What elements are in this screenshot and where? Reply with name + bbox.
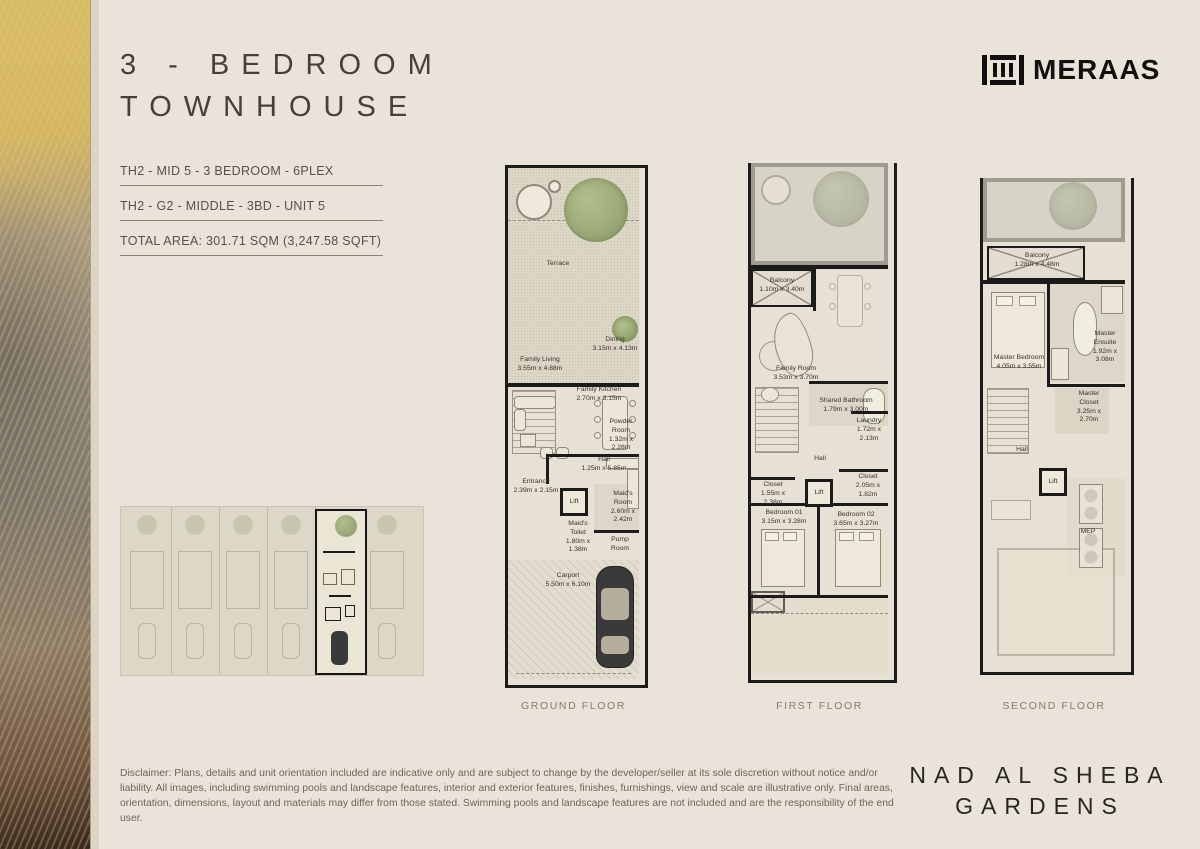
car-outline [234, 623, 252, 659]
room-label-hall: Hall 1.25m x 5.85m [580, 456, 628, 474]
pillow [996, 296, 1013, 306]
vanity [1051, 348, 1069, 380]
chair [629, 400, 636, 407]
car-outline [378, 623, 396, 659]
room-label-family-kitchen: Family Kitchen 2.70m x 3.15m [570, 386, 628, 404]
chair [594, 416, 601, 423]
room-label-shared-bathroom: Shared Bathroom 1.79m x 3.00m [809, 397, 883, 415]
meraas-logo: MERAAS [982, 54, 1160, 86]
pillow [859, 532, 874, 541]
meraas-logo-icon [982, 55, 1024, 85]
pillow [765, 532, 779, 541]
page-title: 3 - BEDROOM TOWNHOUSE [120, 44, 444, 128]
unit-outline [274, 551, 308, 609]
car-outline [138, 623, 156, 659]
room-label-mep: MEP [1073, 528, 1103, 537]
room-label-family-room: Family Room 3.53m x 3.70m [765, 365, 827, 383]
wall [1047, 384, 1125, 387]
strip-divider [90, 0, 99, 849]
planter-icon [548, 180, 561, 193]
room-label-terrace: Terrace [528, 260, 588, 269]
tree-icon [137, 515, 157, 535]
car-outline [186, 623, 204, 659]
wall [751, 477, 795, 480]
wall [813, 269, 816, 311]
tree-icon [377, 515, 397, 535]
unit-outline [178, 551, 212, 609]
garage-opening [516, 673, 631, 674]
planter-icon [761, 175, 791, 205]
floor-label-first: FIRST FLOOR [748, 700, 891, 712]
pillow [783, 532, 797, 541]
room-label-lift: Lift [805, 489, 833, 498]
total-area-line: TOTAL AREA: 301.71 SQM (3,247.58 SQFT) [120, 234, 383, 256]
chair [864, 303, 871, 310]
unit-info-block: TH2 - MID 5 - 3 BEDROOM - 6PLEX TH2 - G2… [120, 164, 383, 269]
car-icon [331, 631, 348, 665]
wall [594, 530, 639, 533]
room-label-powder-room: Powder Room 1.32m x 2.28m [604, 418, 638, 453]
room-label-hall: Hall [805, 455, 835, 464]
room-label-master-closet: Master Closet 3.25m x 2.70m [1071, 390, 1107, 425]
seat [991, 500, 1031, 520]
mini-room [345, 605, 355, 617]
tree-icon [185, 515, 205, 535]
pillow [839, 532, 854, 541]
tree-icon [281, 515, 301, 535]
room-label-closet-1: Closet 1.55m x 2.38m [753, 481, 793, 507]
ac-unit [1079, 484, 1103, 524]
site-key-plan [120, 506, 424, 676]
unit-code-line: TH2 - MID 5 - 3 BEDROOM - 6PLEX [120, 164, 383, 186]
room-label-laundry: Laundry 1.72m x 2.13m [853, 417, 885, 443]
site-unit [363, 507, 411, 675]
tree-icon [233, 515, 253, 535]
floor-label-second: SECOND FLOOR [980, 700, 1128, 712]
coffee-table [520, 434, 536, 447]
mini-wall [329, 595, 351, 597]
room-label-hall: Hall [1007, 446, 1037, 455]
second-floor-plan: Balcony 1.28m x 4.48m Lift Master Bedroo… [980, 178, 1134, 675]
room-label-entrance: Entrance 2.39m x 2.15m [512, 478, 560, 496]
room-label-balcony: Balcony 1.28m x 4.48m [991, 252, 1083, 270]
site-unit [123, 507, 172, 675]
wall [751, 595, 888, 598]
sofa [514, 409, 526, 431]
wall [839, 469, 888, 472]
brand-name: MERAAS [1033, 54, 1160, 86]
room-label-maids-room: Maid's Room 2.60m x 2.42m [608, 490, 638, 525]
site-unit [219, 507, 268, 675]
room-label-maids-toilet: Maid's Toilet 1.80m x 1.38m [560, 520, 596, 555]
room-label-balcony: Balcony 1.10m x 3.40m [753, 277, 811, 295]
dining-table-ghost [837, 275, 863, 327]
beanbag [761, 387, 779, 402]
mini-room [341, 569, 355, 585]
wall [817, 506, 820, 596]
unit-detail-line: TH2 - G2 - MIDDLE - 3BD - UNIT 5 [120, 199, 383, 221]
brochure-page: 3 - BEDROOM TOWNHOUSE TH2 - MID 5 - 3 BE… [0, 0, 1200, 849]
car-rear-window [601, 636, 629, 654]
staircase [987, 388, 1029, 454]
decorative-leaf-image [0, 0, 90, 849]
mini-wall [323, 551, 355, 553]
room-label-bedroom-01: Bedroom 01 3.15m x 3.28m [755, 509, 813, 527]
room-label-bedroom-02: Bedroom 02 3.65m x 3.27m [827, 511, 885, 529]
unit-outline [226, 551, 260, 609]
tree-icon [813, 171, 869, 227]
wall [751, 265, 888, 269]
site-unit [267, 507, 316, 675]
project-name: NAD AL SHEBA GARDENS [905, 760, 1175, 822]
room-label-carport: Carport 5.50m x 6.10m [538, 572, 598, 590]
chair [829, 303, 836, 310]
sofa [514, 396, 556, 409]
room-label-family-living: Family Living 3.55m x 4.88m [514, 356, 566, 374]
tree-icon [564, 178, 628, 242]
wall [983, 280, 1125, 284]
room-label-master-ensuite: Master Ensuite 1.92m x 3.08m [1087, 330, 1123, 365]
room-label-lift: Lift [560, 498, 588, 507]
mini-room [325, 607, 341, 621]
room-label-dining: Dining 3.15m x 4.13m [590, 336, 640, 354]
room-label-lift: Lift [1039, 478, 1067, 487]
car-outline [282, 623, 300, 659]
site-unit [171, 507, 220, 675]
tree-icon [335, 515, 357, 537]
room-label-closet-2: Closet 2.05m x 1.82m [851, 473, 885, 499]
unit-outline [370, 551, 404, 609]
room-label-master-bedroom: Master Bedroom 4.05m x 3.55m [989, 354, 1049, 372]
first-floor-plan: Balcony 1.10m x 3.40m Lift Family Room 3 [748, 163, 897, 683]
chair [864, 283, 871, 290]
car-windshield [601, 588, 629, 620]
mini-room [323, 573, 337, 585]
tree-icon [1049, 182, 1097, 230]
unit-outline [130, 551, 164, 609]
disclaimer-text: Disclaimer: Plans, details and unit orie… [120, 766, 902, 826]
shower [1101, 286, 1123, 314]
ground-floor-plan: Terrace Lift Dining 3.15m x 4.13m Family… [505, 165, 648, 688]
site-unit-highlighted [315, 509, 367, 675]
roof-dash-line [751, 613, 888, 614]
armchair [556, 447, 569, 459]
chair [829, 283, 836, 290]
planter-icon [516, 184, 552, 220]
chair [594, 432, 601, 439]
floor-label-ground: GROUND FLOOR [505, 700, 642, 712]
pillow [1019, 296, 1036, 306]
room-label-pump-room: Pump Room [604, 536, 636, 554]
